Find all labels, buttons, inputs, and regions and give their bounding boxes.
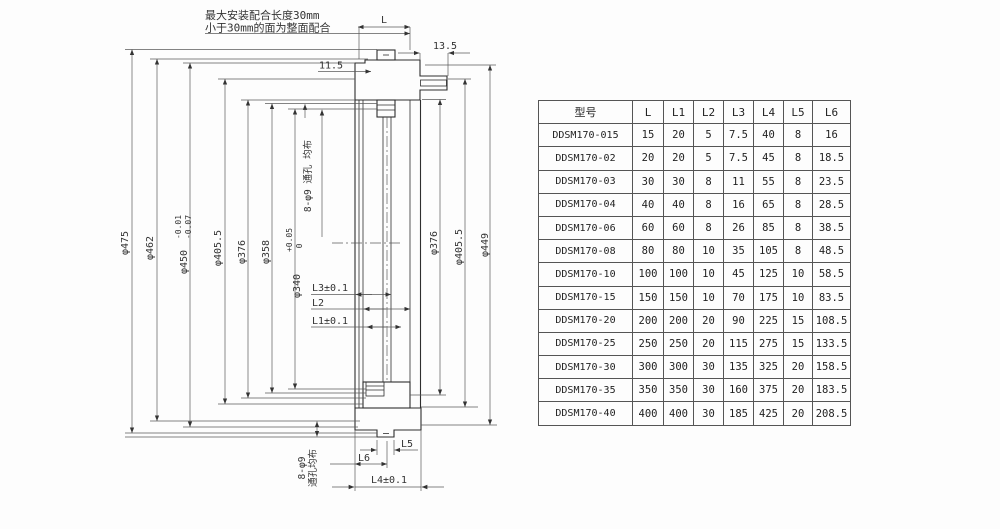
value-cell: 40 — [754, 124, 784, 147]
table-row-0: DDSM170-015152057.540816 — [539, 124, 851, 147]
dim-label-phi450-tol-upper: -0.01 — [174, 215, 183, 239]
dim-label-phi405-left: φ405.5 — [213, 230, 224, 266]
value-cell: 35 — [724, 240, 754, 263]
dim-label-phi449: φ449 — [480, 233, 491, 257]
value-cell: 350 — [633, 379, 664, 402]
dim-label-13-5: 13.5 — [433, 41, 457, 52]
note-holes-bottom-1: 8-φ9 — [297, 456, 308, 479]
bottom-hole-tab — [366, 382, 384, 396]
value-cell: 133.5 — [813, 332, 851, 355]
value-cell: 160 — [724, 379, 754, 402]
value-cell: 275 — [754, 332, 784, 355]
model-cell: DDSM170-30 — [539, 356, 633, 379]
value-cell: 15 — [633, 124, 664, 147]
col-header-4: L3 — [724, 101, 754, 124]
value-cell: 7.5 — [724, 124, 754, 147]
model-cell: DDSM170-25 — [539, 332, 633, 355]
value-cell: 208.5 — [813, 402, 851, 425]
value-cell: 8 — [784, 170, 813, 193]
dim-label-phi376-right: φ376 — [429, 231, 440, 255]
value-cell: 15 — [784, 332, 813, 355]
value-cell: 8 — [784, 240, 813, 263]
value-cell: 20 — [694, 309, 724, 332]
value-cell: 20 — [633, 147, 664, 170]
value-cell: 10 — [694, 286, 724, 309]
value-cell: 8 — [784, 124, 813, 147]
value-cell: 20 — [664, 124, 694, 147]
value-cell: 105 — [754, 240, 784, 263]
col-header-7: L6 — [813, 101, 851, 124]
dim-label-phi450-tol-lower: -0.07 — [184, 215, 193, 239]
model-cell: DDSM170-06 — [539, 216, 633, 239]
model-cell: DDSM170-02 — [539, 147, 633, 170]
note-holes-mid: 8-φ9 通孔 均布 — [302, 140, 314, 212]
top-hole-tab — [377, 100, 395, 117]
value-cell: 175 — [754, 286, 784, 309]
value-cell: 7.5 — [724, 147, 754, 170]
dim-label-11-5: 11.5 — [319, 61, 343, 72]
value-cell: 10 — [784, 286, 813, 309]
model-cell: DDSM170-08 — [539, 240, 633, 263]
value-cell: 250 — [664, 332, 694, 355]
table-row-9: DDSM170-252502502011527515133.5 — [539, 332, 851, 355]
dim-label-L5: L5 — [401, 439, 413, 450]
value-cell: 58.5 — [813, 263, 851, 286]
dim-label-L4: L4±0.1 — [371, 475, 407, 486]
value-cell: 10 — [694, 240, 724, 263]
value-cell: 80 — [633, 240, 664, 263]
value-cell: 30 — [694, 379, 724, 402]
spec-table-wrap: 型号LL1L2L3L4L5L6 DDSM170-015152057.540816… — [538, 100, 850, 426]
spec-table-body: DDSM170-015152057.540816DDSM170-02202057… — [539, 124, 851, 425]
value-cell: 80 — [664, 240, 694, 263]
value-cell: 225 — [754, 309, 784, 332]
value-cell: 108.5 — [813, 309, 851, 332]
value-cell: 11 — [724, 170, 754, 193]
value-cell: 5 — [694, 124, 724, 147]
value-cell: 425 — [754, 402, 784, 425]
value-cell: 250 — [633, 332, 664, 355]
dim-label-phi462: φ462 — [145, 236, 156, 260]
value-cell: 150 — [633, 286, 664, 309]
value-cell: 48.5 — [813, 240, 851, 263]
value-cell: 45 — [754, 147, 784, 170]
col-header-1: L — [633, 101, 664, 124]
value-cell: 185 — [724, 402, 754, 425]
note-holes-bottom-2: 通孔均布 — [307, 449, 319, 487]
value-cell: 30 — [694, 402, 724, 425]
spec-table: 型号LL1L2L3L4L5L6 DDSM170-015152057.540816… — [538, 100, 851, 426]
spec-table-header: 型号LL1L2L3L4L5L6 — [539, 101, 851, 124]
value-cell: 300 — [633, 356, 664, 379]
value-cell: 115 — [724, 332, 754, 355]
value-cell: 158.5 — [813, 356, 851, 379]
dim-label-phi405-right: φ405.5 — [454, 229, 465, 265]
value-cell: 45 — [724, 263, 754, 286]
col-header-2: L1 — [664, 101, 694, 124]
dim-label-L: L — [381, 15, 387, 26]
value-cell: 18.5 — [813, 147, 851, 170]
value-cell: 350 — [664, 379, 694, 402]
col-header-3: L2 — [694, 101, 724, 124]
dim-label-L1: L1±0.1 — [312, 316, 348, 327]
value-cell: 8 — [784, 147, 813, 170]
value-cell: 40 — [664, 193, 694, 216]
value-cell: 40 — [633, 193, 664, 216]
value-cell: 30 — [633, 170, 664, 193]
value-cell: 38.5 — [813, 216, 851, 239]
value-cell: 400 — [633, 402, 664, 425]
model-cell: DDSM170-04 — [539, 193, 633, 216]
value-cell: 8 — [784, 193, 813, 216]
value-cell: 200 — [633, 309, 664, 332]
table-row-12: DDSM170-404004003018542520208.5 — [539, 402, 851, 425]
table-row-5: DDSM170-0880801035105848.5 — [539, 240, 851, 263]
value-cell: 20 — [694, 332, 724, 355]
value-cell: 400 — [664, 402, 694, 425]
datasheet-page: { "drawing": { "note_line1": "最大安装配合长度30… — [0, 0, 1000, 529]
model-cell: DDSM170-015 — [539, 124, 633, 147]
value-cell: 65 — [754, 193, 784, 216]
value-cell: 83.5 — [813, 286, 851, 309]
value-cell: 20 — [784, 379, 813, 402]
technical-drawing: 最大安装配合长度30mm 小于30mm的面为整面配合 L 13.5 11.5 φ… — [0, 0, 530, 529]
value-cell: 125 — [754, 263, 784, 286]
value-cell: 16 — [724, 193, 754, 216]
table-row-1: DDSM170-02202057.545818.5 — [539, 147, 851, 170]
value-cell: 20 — [664, 147, 694, 170]
value-cell: 60 — [664, 216, 694, 239]
value-cell: 325 — [754, 356, 784, 379]
value-cell: 200 — [664, 309, 694, 332]
col-header-5: L4 — [754, 101, 784, 124]
table-row-2: DDSM170-03303081155823.5 — [539, 170, 851, 193]
value-cell: 8 — [694, 170, 724, 193]
value-cell: 23.5 — [813, 170, 851, 193]
value-cell: 183.5 — [813, 379, 851, 402]
value-cell: 375 — [754, 379, 784, 402]
table-row-11: DDSM170-353503503016037520183.5 — [539, 379, 851, 402]
table-row-6: DDSM170-1010010010451251058.5 — [539, 263, 851, 286]
value-cell: 5 — [694, 147, 724, 170]
value-cell: 55 — [754, 170, 784, 193]
model-cell: DDSM170-20 — [539, 309, 633, 332]
table-row-7: DDSM170-1515015010701751083.5 — [539, 286, 851, 309]
value-cell: 28.5 — [813, 193, 851, 216]
dim-label-phi450: φ450 — [179, 250, 190, 274]
model-cell: DDSM170-15 — [539, 286, 633, 309]
value-cell: 135 — [724, 356, 754, 379]
dim-label-L2: L2 — [312, 298, 324, 309]
table-row-8: DDSM170-20200200209022515108.5 — [539, 309, 851, 332]
value-cell: 85 — [754, 216, 784, 239]
model-cell: DDSM170-03 — [539, 170, 633, 193]
dim-label-phi340-tol-upper: +0.05 — [285, 228, 294, 252]
dim-label-L3: L3±0.1 — [312, 283, 348, 294]
value-cell: 90 — [724, 309, 754, 332]
dim-label-phi340-tol-lower: 0 — [295, 243, 304, 248]
model-cell: DDSM170-35 — [539, 379, 633, 402]
value-cell: 16 — [813, 124, 851, 147]
dim-label-L6: L6 — [358, 453, 370, 464]
value-cell: 10 — [694, 263, 724, 286]
shaft-stub-strip — [421, 80, 447, 86]
note-full-face-fit: 小于30mm的面为整面配合 — [205, 21, 331, 35]
value-cell: 30 — [694, 356, 724, 379]
dim-label-phi340: φ340 — [292, 274, 303, 298]
dim-label-phi376-left: φ376 — [237, 240, 248, 264]
table-row-4: DDSM170-06606082685838.5 — [539, 216, 851, 239]
note-max-fit-length: 最大安装配合长度30mm — [205, 8, 320, 22]
model-cell: DDSM170-10 — [539, 263, 633, 286]
value-cell: 60 — [633, 216, 664, 239]
value-cell: 8 — [694, 193, 724, 216]
value-cell: 150 — [664, 286, 694, 309]
table-row-3: DDSM170-04404081665828.5 — [539, 193, 851, 216]
col-header-0: 型号 — [539, 101, 633, 124]
value-cell: 10 — [784, 263, 813, 286]
dim-label-phi358: φ358 — [261, 240, 272, 264]
table-row-10: DDSM170-303003003013532520158.5 — [539, 356, 851, 379]
value-cell: 100 — [664, 263, 694, 286]
value-cell: 26 — [724, 216, 754, 239]
value-cell: 20 — [784, 402, 813, 425]
value-cell: 300 — [664, 356, 694, 379]
value-cell: 15 — [784, 309, 813, 332]
value-cell: 30 — [664, 170, 694, 193]
value-cell: 70 — [724, 286, 754, 309]
value-cell: 20 — [784, 356, 813, 379]
dim-label-phi475: φ475 — [120, 231, 131, 255]
col-header-6: L5 — [784, 101, 813, 124]
value-cell: 100 — [633, 263, 664, 286]
value-cell: 8 — [694, 216, 724, 239]
value-cell: 8 — [784, 216, 813, 239]
model-cell: DDSM170-40 — [539, 402, 633, 425]
